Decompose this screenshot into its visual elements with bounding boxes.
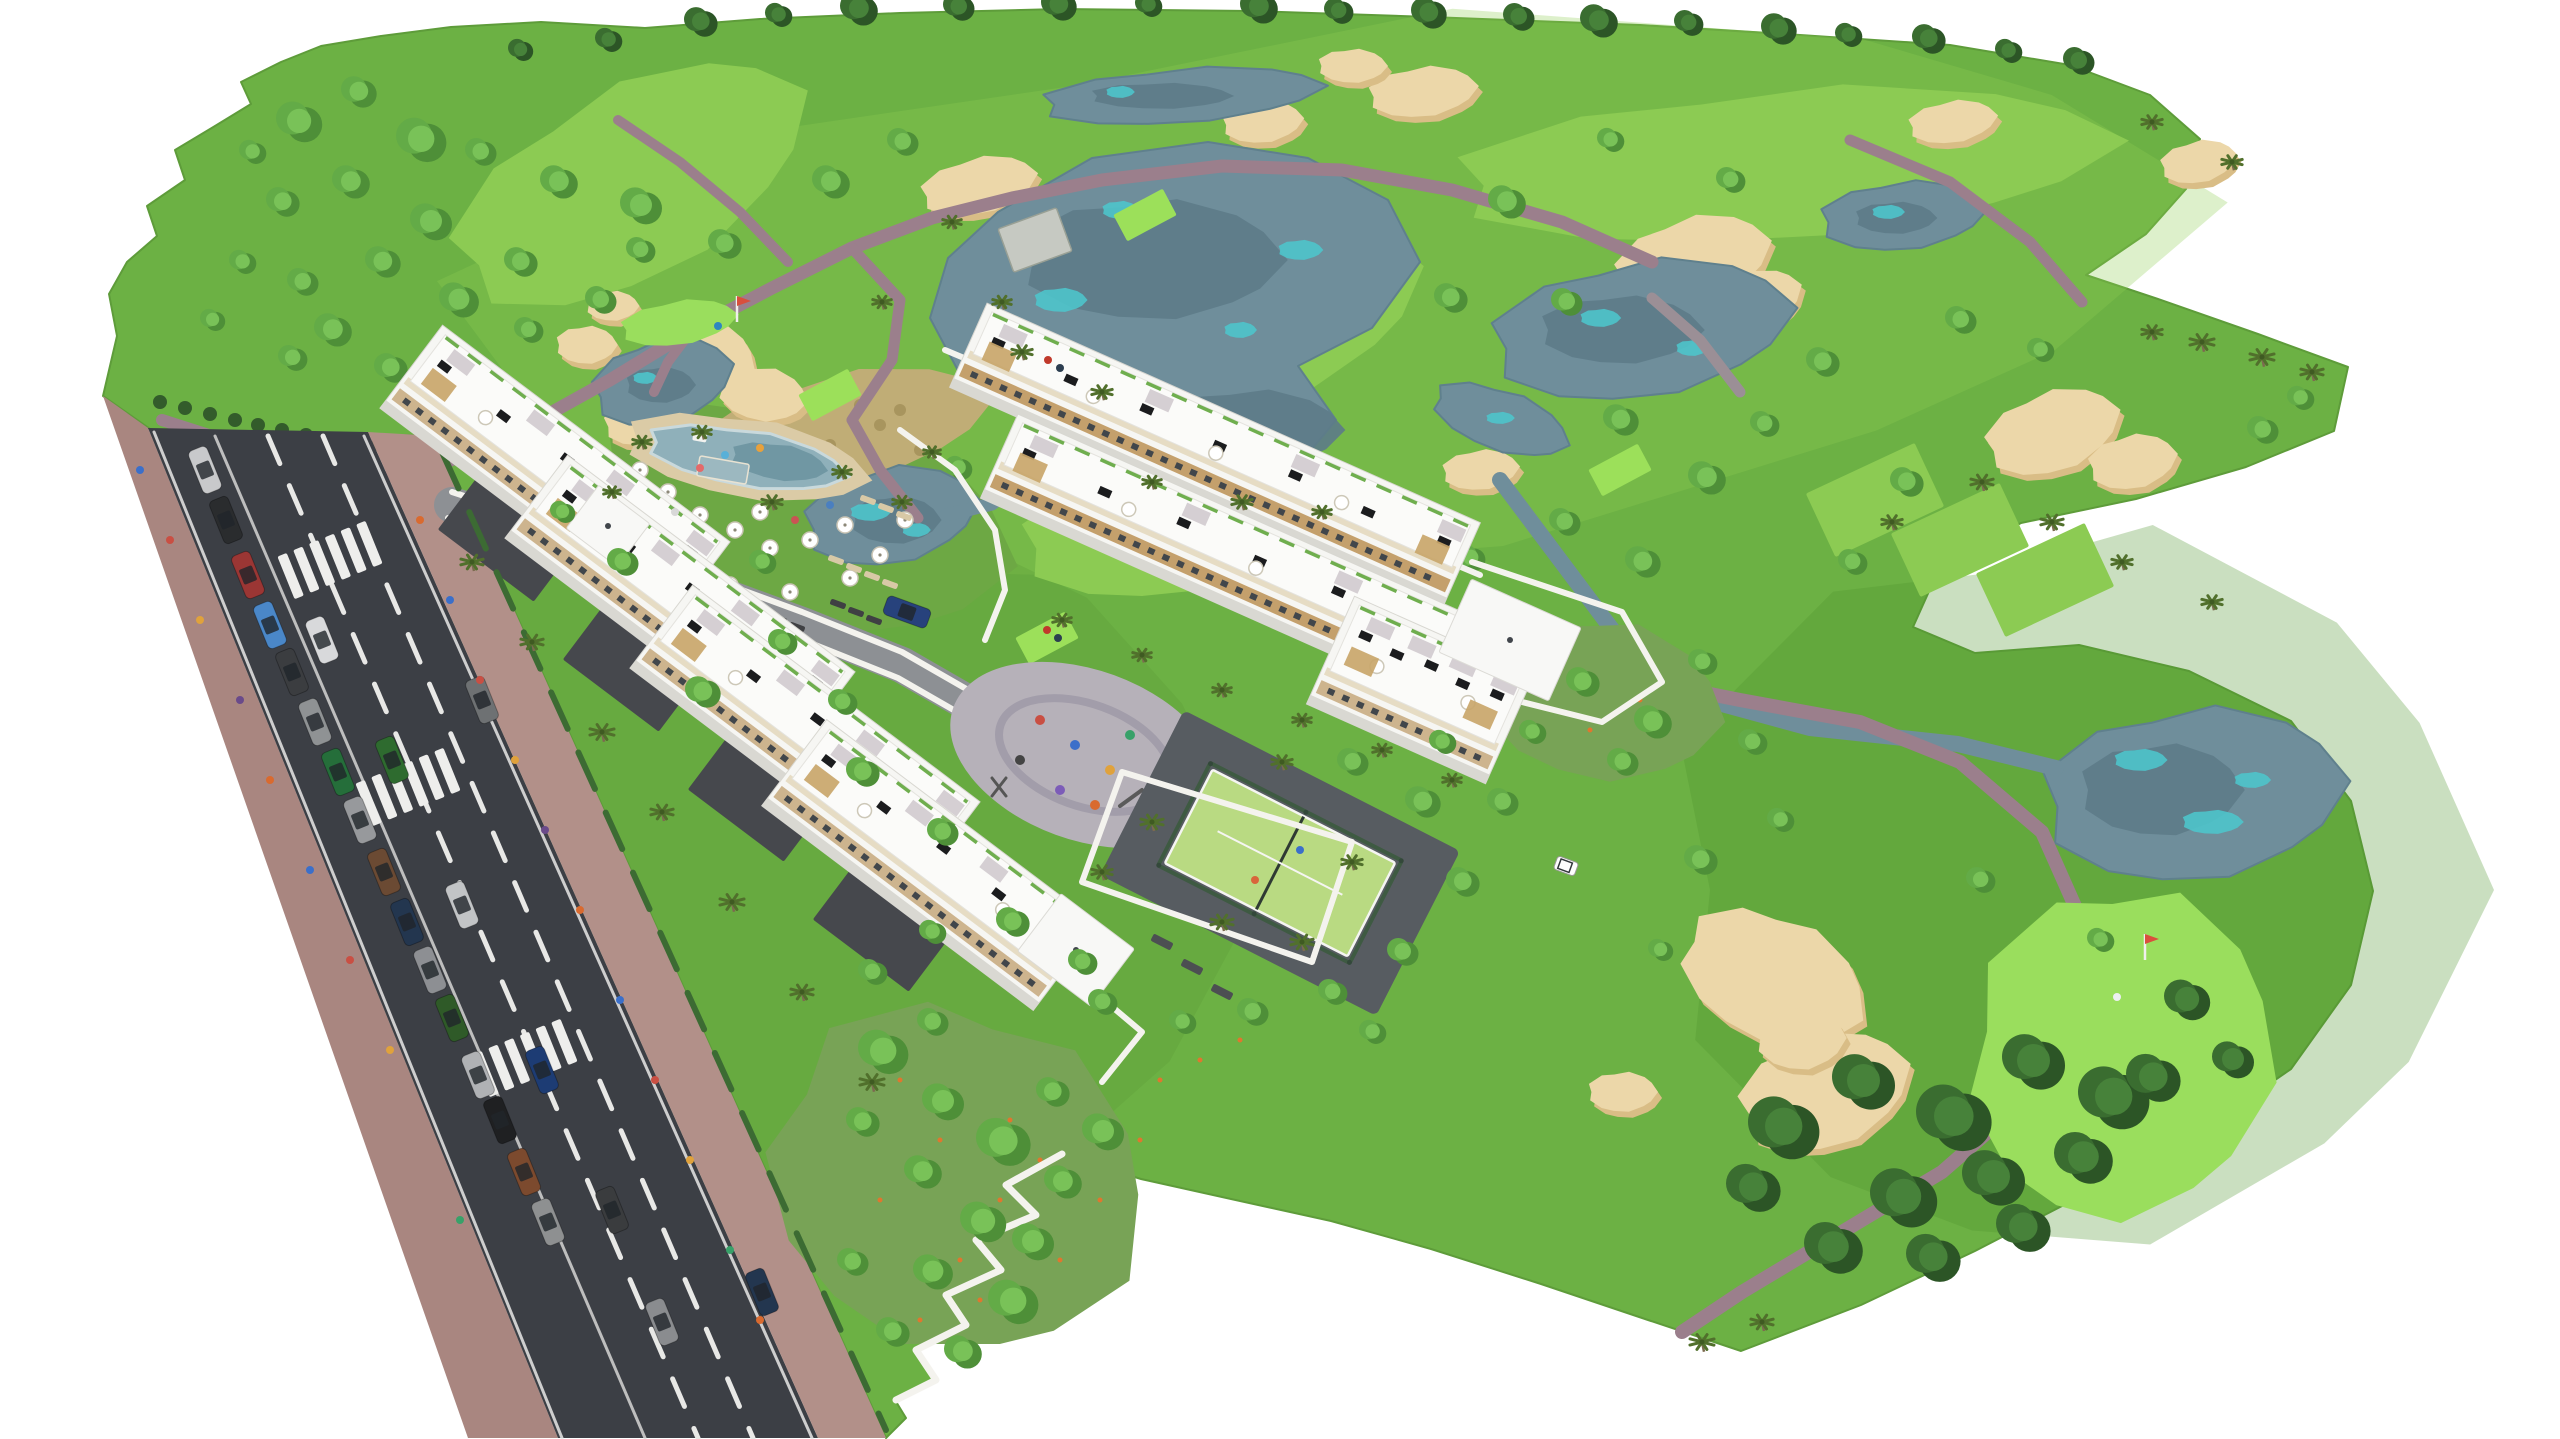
aerial-render-stage: Aerial 3D render of a golf resort master… (0, 0, 2560, 1439)
aerial-site-render (0, 0, 2560, 1439)
